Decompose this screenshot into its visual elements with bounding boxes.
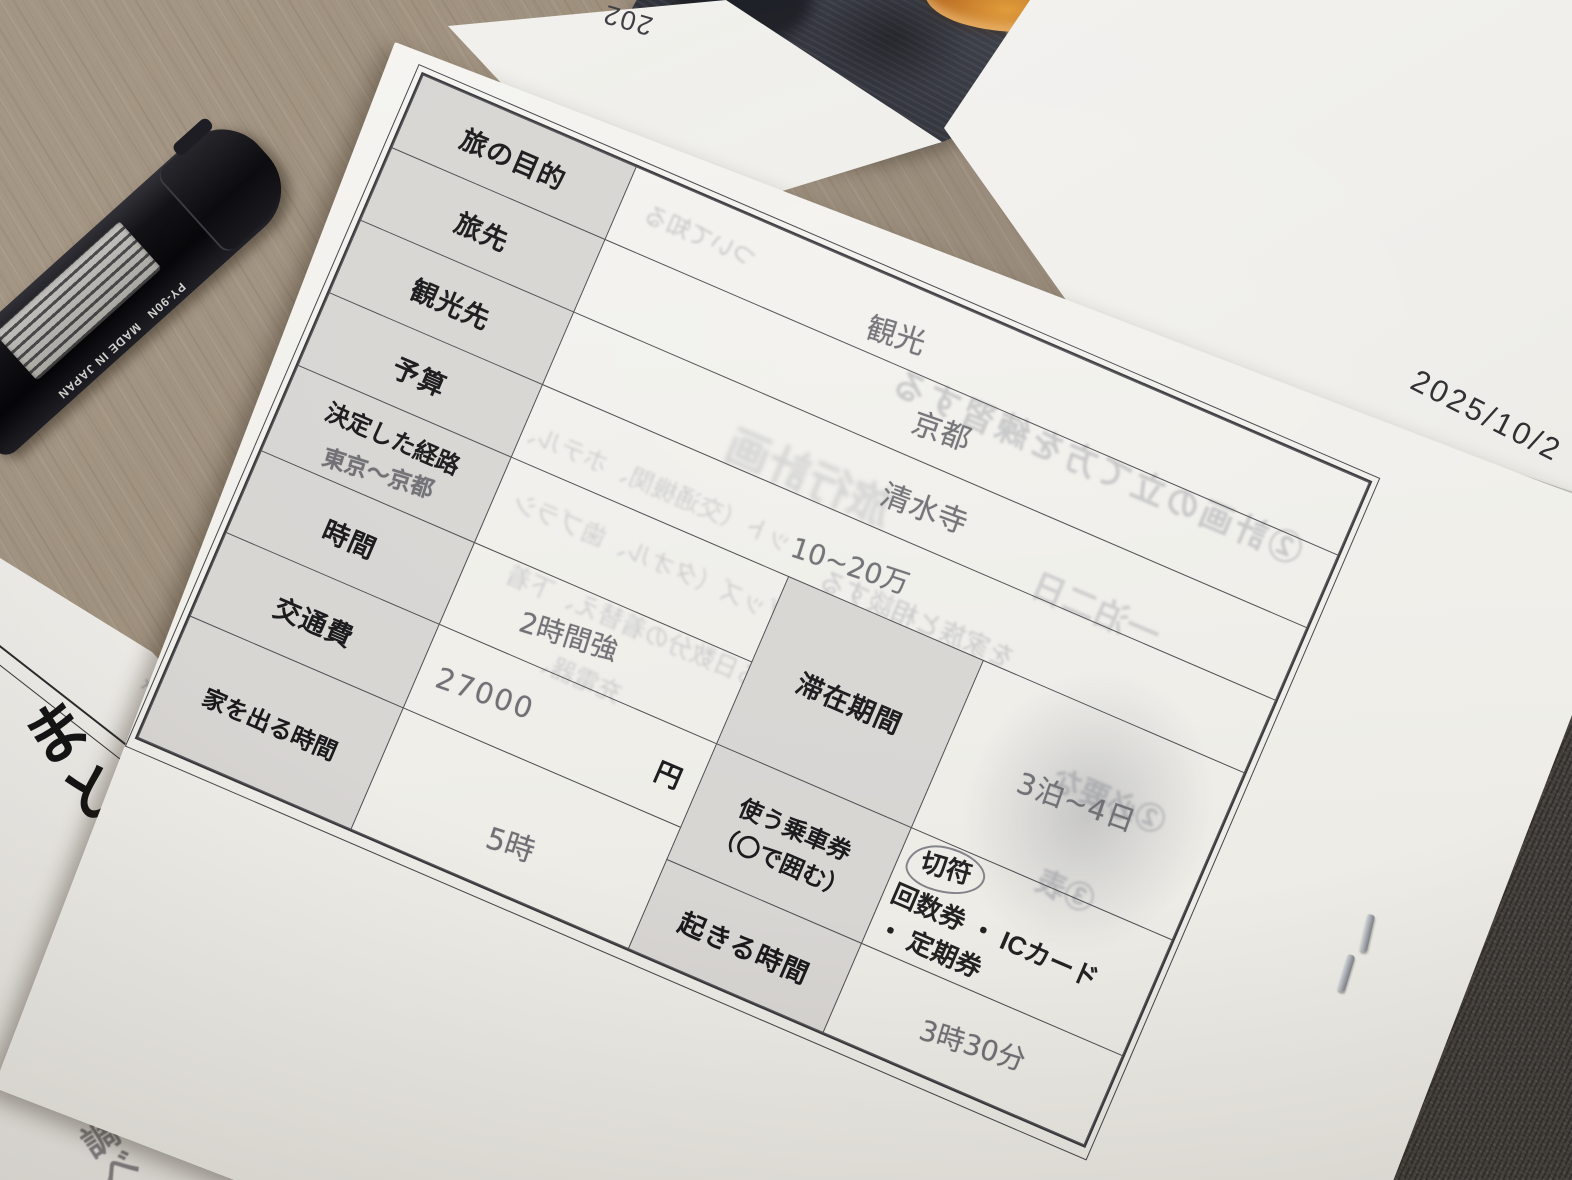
photo-of-travel-worksheet: 202 まとめ を練習する 交通機関の使い方 要な下調べ ②計画の立て方を練習す… [0, 0, 1572, 1180]
answer-transport-cost: 27000 [431, 661, 539, 727]
answer-wake-up-time: 3時30分 [915, 1009, 1031, 1080]
answer-stay-period: 3泊~4日 [1012, 760, 1143, 841]
answer-sightseeing-spot: 清水寺 [875, 470, 975, 542]
yen-unit-label: 円 [649, 750, 689, 796]
answer-destination: 京都 [906, 398, 977, 459]
answer-leave-home-time: 5時 [481, 813, 541, 870]
answer-travel-time: 2時間強 [514, 601, 623, 669]
